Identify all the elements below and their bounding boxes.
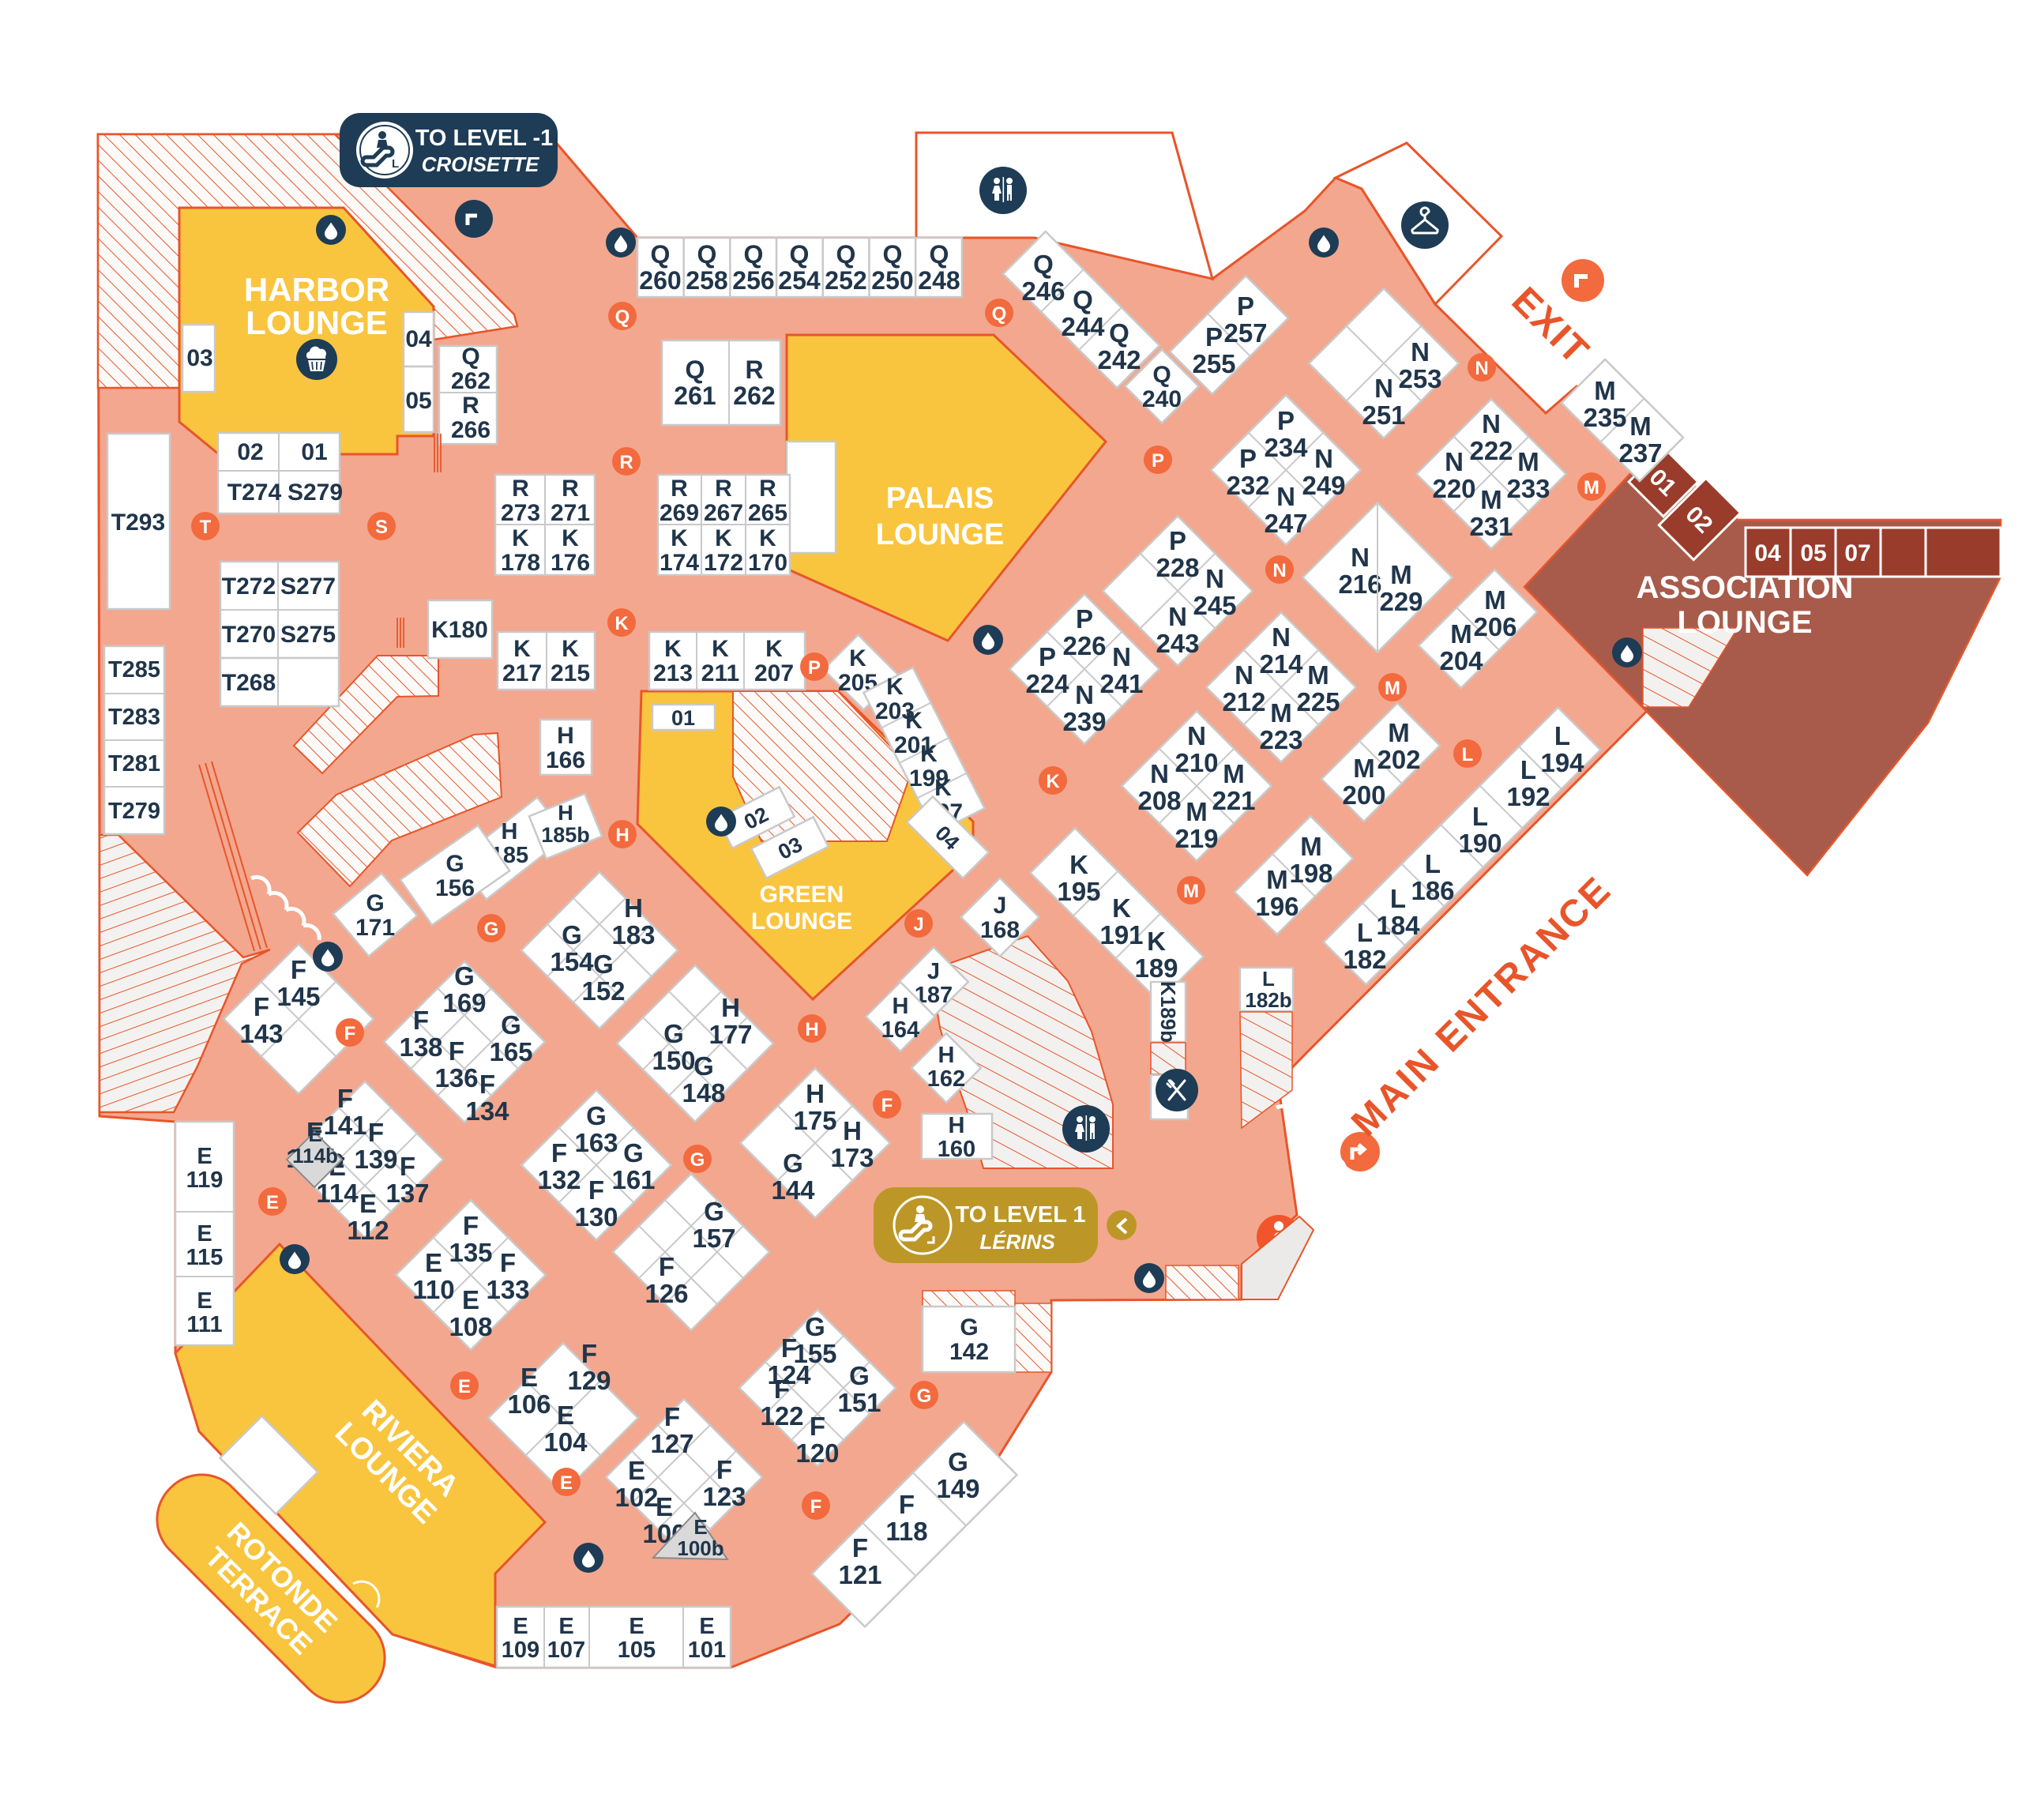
svg-text:M: M — [1584, 477, 1599, 498]
svg-text:P: P — [808, 657, 821, 679]
svg-text:CROISETTE: CROISETTE — [422, 152, 539, 176]
svg-text:K180: K180 — [431, 617, 488, 643]
svg-text:T293: T293 — [111, 510, 165, 536]
svg-text:T: T — [200, 517, 212, 538]
svg-text:04: 04 — [405, 326, 432, 352]
svg-text:T270: T270 — [222, 622, 276, 648]
svg-text:T279: T279 — [108, 799, 160, 824]
svg-text:HARBORLOUNGE: HARBORLOUNGE — [244, 271, 389, 341]
svg-text:E: E — [458, 1376, 471, 1397]
svg-text:TO LEVEL -1: TO LEVEL -1 — [415, 126, 554, 151]
svg-text:K: K — [614, 613, 629, 634]
svg-text:LÉRINS: LÉRINS — [979, 1230, 1055, 1254]
svg-text:02: 02 — [237, 439, 263, 465]
svg-text:Q: Q — [615, 306, 630, 328]
svg-text:M: M — [1183, 881, 1199, 902]
svg-text:K: K — [1046, 771, 1060, 792]
svg-text:K189b: K189b — [1156, 981, 1180, 1043]
svg-text:T285: T285 — [108, 657, 160, 682]
svg-text:G: G — [690, 1149, 705, 1171]
svg-text:T274: T274 — [227, 479, 282, 506]
svg-text:R: R — [619, 452, 633, 473]
svg-text:M: M — [1385, 678, 1400, 699]
svg-text:01: 01 — [671, 706, 695, 730]
svg-text:H: H — [805, 1019, 818, 1040]
svg-text:03: 03 — [186, 345, 212, 371]
svg-text:T268: T268 — [222, 670, 276, 696]
svg-text:E: E — [560, 1472, 573, 1494]
svg-text:J: J — [913, 914, 923, 935]
svg-text:P: P — [1152, 450, 1164, 472]
svg-text:S277: S277 — [280, 573, 336, 600]
svg-text:T272: T272 — [222, 573, 276, 600]
svg-text:E: E — [266, 1192, 279, 1213]
svg-text:04: 04 — [1754, 540, 1781, 566]
svg-text:L: L — [392, 157, 399, 171]
svg-text:N: N — [1272, 560, 1286, 581]
svg-text:Q: Q — [992, 303, 1007, 325]
svg-text:05: 05 — [405, 388, 431, 414]
svg-text:F: F — [810, 1496, 822, 1517]
svg-text:GREENLOUNGE: GREENLOUNGE — [751, 882, 852, 934]
svg-text:TO LEVEL 1: TO LEVEL 1 — [956, 1202, 1086, 1228]
svg-text:07: 07 — [1844, 540, 1870, 566]
svg-text:G: G — [484, 919, 499, 940]
svg-text:F: F — [881, 1095, 893, 1116]
svg-text:F: F — [344, 1023, 356, 1044]
svg-text:01: 01 — [301, 439, 327, 465]
svg-text:L: L — [1462, 744, 1474, 765]
svg-text:N: N — [1475, 358, 1488, 379]
svg-text:T281: T281 — [108, 751, 160, 777]
svg-text:S275: S275 — [280, 622, 336, 648]
svg-text:G: G — [917, 1386, 932, 1407]
svg-text:S: S — [375, 517, 388, 538]
svg-text:S279: S279 — [288, 479, 343, 506]
svg-text:T283: T283 — [108, 705, 160, 730]
svg-text:H: H — [615, 825, 629, 846]
svg-text:05: 05 — [1800, 540, 1826, 566]
